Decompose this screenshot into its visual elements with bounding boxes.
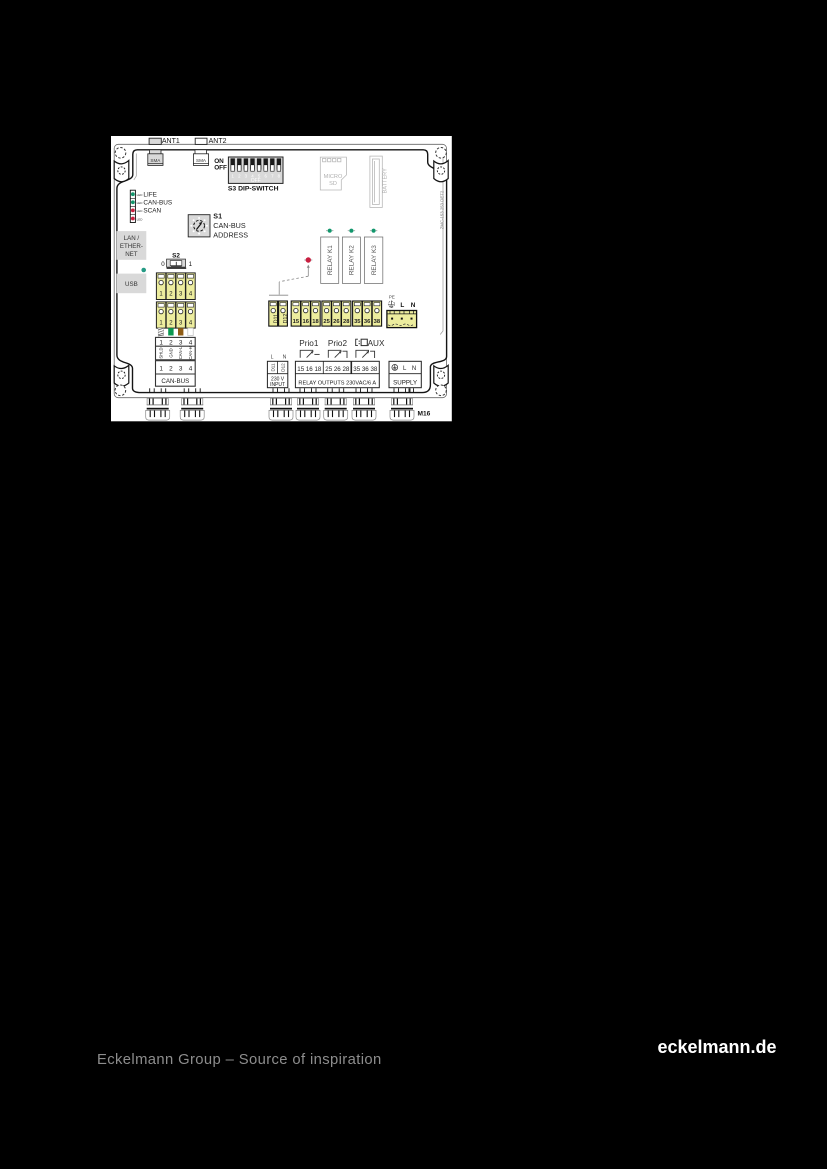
svg-text:RELAY OUTPUTS 230VAC/6 A: RELAY OUTPUTS 230VAC/6 A [298, 380, 376, 386]
svg-text:RELAY K1: RELAY K1 [327, 245, 334, 275]
svg-text:INPUT: INPUT [270, 382, 285, 388]
svg-text:SUPPLY: SUPPLY [393, 379, 417, 386]
svg-text:N: N [411, 302, 416, 309]
svg-text:ANT2: ANT2 [209, 138, 227, 145]
svg-text:OFF: OFF [251, 178, 261, 184]
svg-text:ETHER-: ETHER- [120, 243, 143, 250]
svg-text:ADDRESS: ADDRESS [213, 230, 248, 239]
svg-text:28: 28 [343, 319, 350, 325]
svg-text:S3 DIP-SWITCH: S3 DIP-SWITCH [228, 186, 279, 193]
svg-text:SHLD: SHLD [159, 347, 164, 358]
svg-text:N: N [412, 366, 416, 372]
svg-text:ZMC-153 253 DET2: ZMC-153 253 DET2 [440, 190, 445, 229]
svg-text:LED: LED [137, 193, 144, 197]
svg-text:Prio2: Prio2 [328, 339, 348, 348]
svg-text:15: 15 [293, 319, 300, 325]
svg-text:38: 38 [374, 319, 381, 325]
svg-text:M16: M16 [418, 411, 431, 418]
svg-text:CAN-BUS: CAN-BUS [213, 221, 246, 230]
svg-text:BATTERY: BATTERY [383, 168, 389, 194]
svg-text:LED: LED [137, 209, 144, 213]
svg-text:LED: LED [137, 201, 144, 205]
svg-text:2: 2 [169, 339, 173, 346]
svg-text:L: L [271, 354, 274, 360]
svg-text:1: 1 [189, 261, 193, 268]
svg-text:PE: PE [389, 295, 395, 300]
svg-text:35: 35 [354, 319, 361, 325]
svg-text:ANT1: ANT1 [162, 138, 180, 145]
svg-text:OFF: OFF [214, 165, 227, 172]
svg-text:16: 16 [302, 319, 309, 325]
svg-text:25: 25 [323, 319, 330, 325]
svg-text:RELAY K3: RELAY K3 [371, 245, 378, 275]
svg-text:1: 1 [159, 366, 163, 373]
svg-text:D12: D12 [281, 363, 286, 372]
svg-text:4: 4 [189, 339, 193, 346]
svg-text:SMA: SMA [150, 158, 161, 163]
svg-text:SMA: SMA [196, 158, 207, 163]
svg-text:MICRO: MICRO [324, 174, 343, 180]
svg-text:SD: SD [329, 181, 337, 187]
svg-text:L: L [400, 302, 404, 309]
svg-text:NET: NET [125, 251, 138, 258]
svg-text:CAN-H: CAN-H [188, 346, 193, 359]
svg-text:25 26 28: 25 26 28 [325, 366, 350, 373]
svg-text:0: 0 [161, 261, 165, 268]
svg-text:LED: LED [137, 217, 144, 221]
svg-text:SCAN: SCAN [143, 208, 161, 215]
svg-text:USB: USB [125, 281, 138, 288]
svg-text:36: 36 [364, 319, 371, 325]
svg-text:RELAY K2: RELAY K2 [349, 245, 356, 275]
svg-text:AUX: AUX [368, 339, 385, 348]
svg-text:D11: D11 [270, 363, 275, 372]
svg-text:35 36 38: 35 36 38 [353, 366, 378, 373]
svg-text:LAN /: LAN / [124, 235, 140, 242]
svg-text:2: 2 [169, 366, 173, 373]
svg-text:CAN-BUS: CAN-BUS [161, 378, 189, 385]
svg-text:4: 4 [189, 366, 193, 373]
svg-text:Prio1: Prio1 [299, 339, 319, 348]
svg-text:CAN-L: CAN-L [178, 346, 183, 359]
svg-text:3: 3 [179, 339, 183, 346]
svg-text:N: N [283, 354, 287, 360]
svg-text:15 16 18: 15 16 18 [297, 366, 322, 373]
svg-text:18: 18 [312, 319, 319, 325]
svg-text:S1: S1 [213, 211, 222, 220]
svg-text:CAN-BUS: CAN-BUS [143, 199, 172, 206]
svg-text:LIFE: LIFE [143, 191, 157, 198]
svg-text:D12: D12 [283, 314, 289, 324]
svg-text:S2: S2 [172, 252, 180, 259]
svg-text:GND: GND [168, 348, 173, 357]
svg-text:1: 1 [159, 339, 163, 346]
svg-text:26: 26 [333, 319, 340, 325]
svg-text:3: 3 [179, 366, 183, 373]
